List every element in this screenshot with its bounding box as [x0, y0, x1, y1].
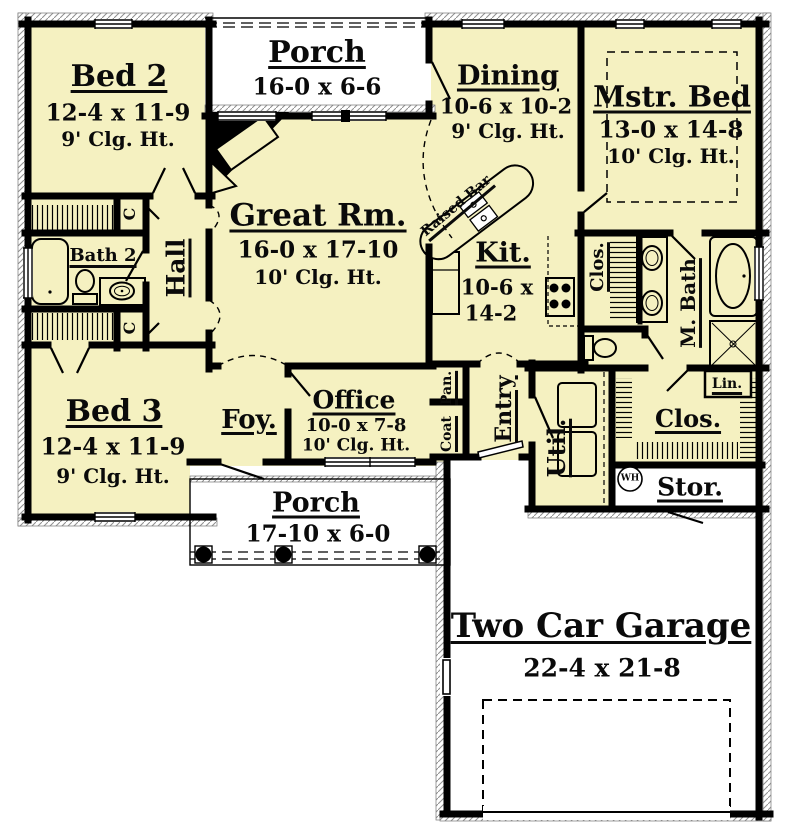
dining-clg-label: 9' Clg. Ht.	[451, 121, 565, 141]
toilet2-fixture	[73, 270, 97, 304]
bed2-dim-label: 12-4 x 11-9	[46, 102, 191, 125]
garage-door	[483, 700, 730, 820]
dining-label: Dining	[457, 63, 559, 90]
garden-tub-fixture	[710, 237, 757, 316]
office-dim-label: 10-0 x 7-8	[306, 417, 407, 435]
great-rm-label: Great Rm.	[229, 201, 406, 232]
pan-label: Pan.	[440, 371, 454, 405]
floor-plan: Bed 2 12-4 x 11-9 9' Clg. Ht. Porch 16-0…	[0, 0, 800, 839]
range-fixture	[546, 278, 574, 316]
dining-dim-label: 10-6 x 10-2	[440, 96, 572, 117]
master-toilet-fixture	[584, 336, 616, 360]
refrigerator-fixture	[432, 252, 459, 314]
mstr-bed-label: Mstr. Bed	[593, 83, 751, 112]
water-heater-label: WH	[621, 475, 640, 484]
porch-top-label: Porch	[268, 38, 366, 68]
great-rm-clg-label: 10' Clg. Ht.	[254, 267, 381, 287]
util-label: Util.	[545, 419, 569, 478]
bed3-label: Bed 3	[66, 397, 163, 427]
clos-right-label: Clos.	[655, 407, 721, 431]
porch-bottom-dim-label: 17-10 x 6-0	[246, 523, 391, 546]
lin-label: Lin.	[712, 377, 742, 391]
bed2-label: Bed 2	[71, 62, 168, 92]
kit-dim1-label: 10-6 x	[461, 277, 533, 298]
mstr-bed-dim-label: 13-0 x 14-8	[599, 119, 744, 142]
office-clg-label: 10' Clg. Ht.	[302, 438, 410, 455]
closet-c-top-label: C	[122, 208, 138, 221]
bath2-label: Bath 2	[69, 247, 136, 265]
office-label: Office	[313, 388, 396, 413]
entry-label: Entry	[493, 375, 515, 442]
bed2-clg-label: 9' Clg. Ht.	[61, 129, 175, 149]
coat-label: Coat	[440, 416, 454, 452]
closet-c-bottom-label: C	[122, 322, 138, 335]
garage-label: Two Car Garage	[451, 609, 752, 643]
porch-top-dim-label: 16-0 x 6-6	[253, 76, 382, 99]
vanity2-fixture	[100, 278, 145, 305]
foy-label: Foy.	[221, 407, 277, 433]
clos-master-label: Clos.	[589, 242, 607, 292]
bed3-clg-label: 9' Clg. Ht.	[56, 466, 170, 486]
bathtub2-fixture	[32, 239, 68, 304]
mstr-bed-clg-label: 10' Clg. Ht.	[607, 146, 734, 166]
hall-label: Hall	[164, 239, 189, 298]
stor-label: Stor.	[657, 475, 723, 500]
great-rm-dim-label: 16-0 x 17-10	[238, 239, 399, 262]
shower-fixture	[710, 321, 757, 367]
porch-bottom-label: Porch	[272, 490, 360, 517]
kit-label: Kit.	[475, 240, 531, 267]
m-bath-label: M. Bath	[678, 258, 698, 348]
garage-dim-label: 22-4 x 21-8	[523, 656, 680, 681]
kit-dim2-label: 14-2	[465, 303, 518, 324]
bed3-dim-label: 12-4 x 11-9	[41, 436, 186, 459]
